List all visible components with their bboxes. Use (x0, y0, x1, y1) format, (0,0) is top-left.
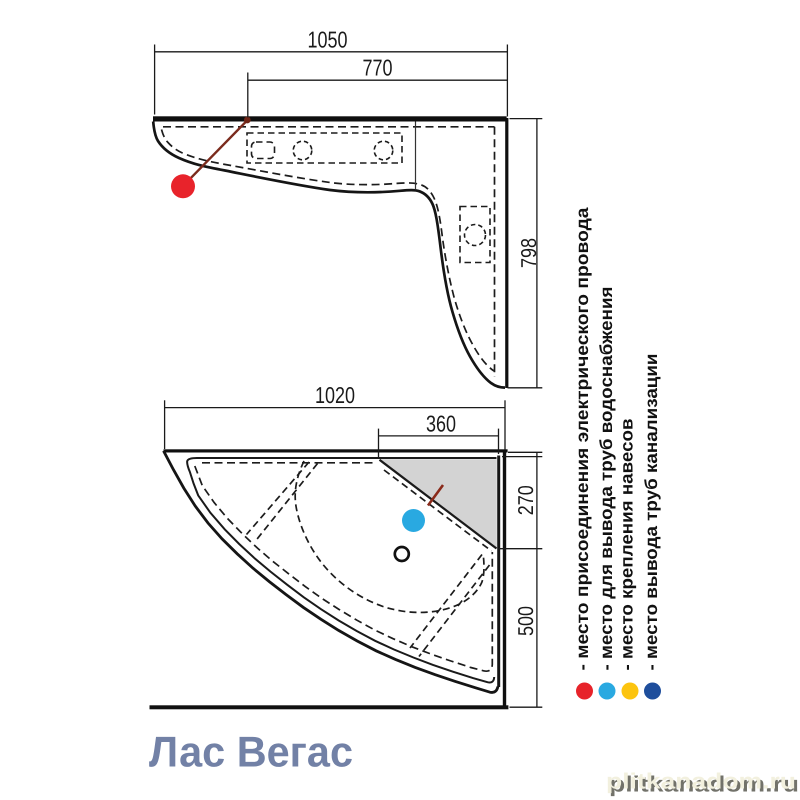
svg-text:- место присоединения электрич: - место присоединения электрического про… (572, 207, 592, 670)
svg-text:270: 270 (514, 485, 538, 515)
svg-text:360: 360 (426, 410, 456, 436)
svg-text:500: 500 (514, 606, 538, 636)
svg-text:plitkanadom.ru: plitkanadom.ru (606, 769, 796, 794)
svg-text:- место крепления навесов: - место крепления навесов (617, 418, 637, 670)
svg-text:1020: 1020 (315, 382, 355, 408)
svg-text:Лас Вегас: Лас Вегас (149, 729, 353, 777)
svg-text:770: 770 (363, 55, 393, 81)
svg-text:1050: 1050 (308, 26, 348, 52)
svg-text:798: 798 (517, 238, 541, 268)
svg-text:- место вывода труб канализаци: - место вывода труб канализации (641, 354, 661, 671)
svg-text:- место для вывода труб водосн: - место для вывода труб водоснабжения (596, 287, 616, 671)
